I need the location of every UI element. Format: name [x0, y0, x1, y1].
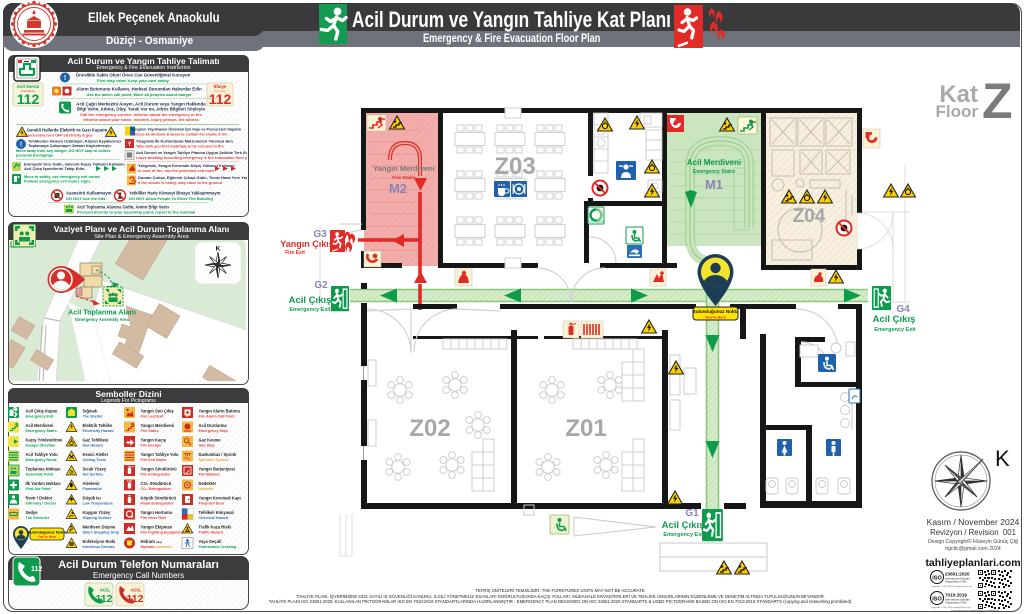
- svg-text:Pedestrians Crossing: Pedestrians Crossing: [199, 545, 237, 549]
- svg-text:Emergency Stairs: Emergency Stairs: [693, 169, 735, 175]
- svg-text:Acil Çıkış: Acil Çıkış: [662, 520, 705, 531]
- svg-text:Sedye: Sedye: [26, 510, 39, 515]
- svg-text:Use the alarm call point, Warn: Use the alarm call point, Warn all peopl…: [86, 92, 192, 97]
- svg-text:Yangın Merdiveni: Yangın Merdiveni: [373, 164, 435, 173]
- svg-text:Yangının Yayılmasını Önlemek İ: Yangının Yayılmasını Önlemek İçin Kapı v…: [131, 127, 242, 132]
- svg-text:The Shelter: The Shelter: [83, 415, 104, 419]
- svg-text:ISO: ISO: [932, 597, 942, 603]
- svg-text:CO2: CO2: [127, 480, 133, 483]
- svg-text:Electricity Hazard: Electricity Hazard: [83, 429, 115, 433]
- svg-text:Acil Çıkış Kapısı: Acil Çıkış Kapısı: [26, 409, 58, 414]
- svg-text:!: !: [64, 75, 66, 82]
- svg-text:Take with you first materials: Take with you first materials to be resc…: [136, 145, 224, 149]
- svg-text:Fire Stairs: Fire Stairs: [141, 429, 159, 433]
- svg-text:Gaz Tehlikesi: Gaz Tehlikesi: [83, 438, 109, 443]
- svg-text:Merdiven Düşme: Merdiven Düşme: [83, 525, 116, 530]
- svg-text:İlk Yardım Noktası: İlk Yardım Noktası: [26, 481, 61, 486]
- svg-text:Z02: Z02: [409, 415, 450, 442]
- svg-text:Acil Merdiveni: Acil Merdiveni: [26, 423, 54, 428]
- svg-text:Yangında İlk Kurtarılacak Malz: Yangında İlk Kurtarılacak Malzemeleri Ya…: [136, 139, 233, 144]
- svg-text:Sığınak: Sığınak: [83, 409, 98, 414]
- svg-text:Bulunduğunuz Nokta: Bulunduğunuz Nokta: [27, 530, 67, 535]
- svg-text:Gas Hazard: Gas Hazard: [83, 444, 104, 448]
- svg-text:112: 112: [127, 593, 144, 605]
- svg-text:Yangın Kaçış: Yangın Kaçış: [141, 438, 167, 443]
- svg-text:Escape Direction: Escape Direction: [26, 444, 57, 448]
- svg-text:Yangın Çıkış: Yangın Çıkış: [280, 239, 334, 249]
- svg-text:Follows emergency exit routes: Follows emergency exit routes signs: [24, 180, 90, 184]
- svg-text:Toplanma Noktası: Toplanma Noktası: [26, 467, 61, 472]
- svg-text:If the smoke is heavy, stay cl: If the smoke is heavy, stay close to the…: [138, 181, 223, 185]
- svg-text:First Aid Point: First Aid Point: [26, 487, 52, 491]
- svg-text:Gerekli Hallerde Elektrik ve G: Gerekli Hallerde Elektrik ve Gazı Kapatı…: [27, 128, 108, 133]
- svg-text:You're Here: You're Here: [38, 535, 56, 539]
- svg-text:Yaya Geçidi: Yaya Geçidi: [199, 539, 222, 544]
- svg-text:G2: G2: [314, 280, 328, 291]
- svg-text:ACİL: ACİL: [100, 587, 111, 593]
- svg-text:Davlumbaz / Sprink: Davlumbaz / Sprink: [199, 452, 237, 457]
- svg-text:Chemical Hazard: Chemical Hazard: [199, 516, 229, 520]
- svg-text:Yetkililer Hariç Kimseyi Binay: Yetkililer Hariç Kimseyi Binaya Yaklaştı…: [129, 191, 221, 196]
- svg-text:Z01: Z01: [565, 415, 606, 442]
- svg-text:Emergency Exit: Emergency Exit: [663, 532, 704, 538]
- svg-text:112: 112: [96, 593, 113, 605]
- svg-text:Foam Extinguisher: Foam Extinguisher: [141, 502, 175, 506]
- svg-text:Fire Exit: Fire Exit: [285, 250, 305, 256]
- svg-text:Organization (TsE): Organization (TsE): [945, 579, 967, 583]
- svg-text:Emergency Exit: Emergency Exit: [874, 327, 915, 333]
- svg-text:7010:2019: 7010:2019: [945, 593, 967, 598]
- svg-text:DO NOT Allow People To Enter T: DO NOT Allow People To Enter The Buildin…: [129, 196, 213, 201]
- svg-text:If necessary turn OFF electric: If necessary turn OFF electricity & gas: [23, 134, 92, 138]
- svg-text:112: 112: [17, 91, 40, 107]
- svg-text:23601:2020: 23601:2020: [945, 572, 970, 577]
- svg-text:Yangın Alarm Butonu: Yangın Alarm Butonu: [199, 409, 241, 414]
- svg-text:The Stretcher: The Stretcher: [26, 516, 50, 520]
- svg-text:!: !: [20, 142, 22, 149]
- svg-text:Z03: Z03: [494, 153, 535, 180]
- svg-text:Yangın Tahliye Yolu: Yangın Tahliye Yolu: [141, 452, 179, 457]
- svg-text:Copyright © ISO 23601 copyrigh: Copyright © ISO 23601 copyright@iso.org: [931, 585, 973, 588]
- svg-text:Organization (TsE): Organization (TsE): [945, 600, 967, 604]
- svg-text:Emergency Assembly Area: Emergency Assembly Area: [75, 317, 129, 322]
- svg-text:Yangında, Yangın Korumalı Kaçı: Yangında, Yangın Korumalı Kaçış Yolların…: [138, 163, 235, 168]
- svg-text:Fire Alarm Call Point: Fire Alarm Call Point: [199, 415, 236, 419]
- svg-text:Proceed directly to your assem: Proceed directly to your assembly point,…: [77, 210, 195, 215]
- svg-text:Alarm Butonunu Kullanın, Herke: Alarm Butonunu Kullanın, Herkesi Durumda…: [76, 87, 202, 92]
- svg-text:Infectious Disease: Infectious Disease: [83, 545, 115, 549]
- svg-text:Acil Merdiveni: Acil Merdiveni: [687, 158, 741, 167]
- svg-text:Fire Blanket: Fire Blanket: [199, 473, 221, 477]
- svg-text:Y: Y: [127, 142, 131, 148]
- svg-text:K: K: [995, 446, 1010, 471]
- svg-text:Gas Stop: Gas Stop: [199, 444, 216, 448]
- svg-text:Asansörü Kullanmayın: Asansörü Kullanmayın: [66, 191, 112, 196]
- svg-text:Düşük Isı: Düşük Isı: [83, 496, 101, 501]
- svg-text:Detector: Detector: [199, 487, 215, 491]
- svg-text:DO NOT Use the lifts: DO NOT Use the lifts: [66, 196, 106, 201]
- svg-text:Revir / Doktor: Revir / Doktor: [26, 496, 53, 501]
- svg-text:112: 112: [209, 91, 232, 107]
- svg-text:Emergency Exit: Emergency Exit: [289, 307, 330, 313]
- svg-text:Acil Çıkış: Acil Çıkış: [289, 295, 332, 306]
- svg-text:Hot Surface: Hot Surface: [83, 473, 104, 477]
- svg-text:First stay calm! Keep your own: First stay calm! Keep your own safety: [97, 78, 170, 83]
- svg-text:Trafik Kaza Riski: Trafik Kaza Riski: [199, 525, 232, 530]
- svg-text:M2: M2: [389, 181, 407, 196]
- svg-text:Fire Escape: Fire Escape: [141, 444, 162, 448]
- svg-text:Emergency Route: Emergency Route: [26, 458, 57, 462]
- svg-text:In case of fire, use fire prot: In case of fire, use fire protected exit…: [138, 169, 215, 173]
- svg-text:Yangın Battaniyesi: Yangın Battaniyesi: [199, 467, 235, 472]
- svg-text:Slipping Surface: Slipping Surface: [83, 516, 112, 520]
- svg-text:Dedektör: Dedektör: [199, 481, 217, 486]
- svg-text:Infirmary / Doctor: Infirmary / Doctor: [26, 502, 57, 506]
- svg-text:K: K: [216, 246, 221, 253]
- svg-text:Fire Fighting Equipment: Fire Fighting Equipment: [141, 531, 184, 535]
- svg-text:Duman Çoksa, Eğilerek Çıkışa G: Duman Çoksa, Eğilerek Çıkışa Gidin, Temi…: [138, 175, 247, 180]
- svg-text:Sprinkler System: Sprinkler System: [199, 458, 230, 462]
- svg-text:Gaz Kesme: Gaz Kesme: [199, 438, 222, 443]
- svg-text:Yangın Ekipman: Yangın Ekipman: [141, 525, 173, 530]
- svg-text:Acil Çıkış: Acil Çıkış: [873, 314, 916, 325]
- svg-text:(copying and networking prohib: (copying and networking prohibited): [951, 609, 999, 613]
- svg-text:Toplamaya Çalışmayın Zaman Kay: Toplamaya Çalışmayın Zaman Kaybetmeyin: [28, 143, 111, 148]
- svg-text:ACİL: ACİL: [131, 587, 142, 593]
- svg-text:M1: M1: [705, 177, 723, 192]
- svg-text:Leave building according emerg: Leave building according emergency & fir…: [136, 156, 247, 160]
- svg-text:Low Temperature: Low Temperature: [83, 502, 113, 506]
- svg-text:Acil Çıkış İşaretlerini Takip: Acil Çıkış İşaretlerini Takip Edin.: [24, 166, 86, 171]
- svg-text:Acil Toplanma Alanı: Acil Toplanma Alanı: [68, 308, 136, 317]
- svg-text:Yangın Merdiveni: Yangın Merdiveni: [141, 423, 175, 428]
- svg-text:112: 112: [31, 566, 42, 573]
- svg-text:Emergency Exit: Emergency Exit: [26, 415, 54, 419]
- svg-text:ISO: ISO: [932, 576, 942, 582]
- svg-text:Yangın Hortumu: Yangın Hortumu: [141, 510, 173, 515]
- svg-text:CO₂ Extinguisher: CO₂ Extinguisher: [141, 487, 172, 491]
- svg-text:Move away from any danger, DO: Move away from any danger, DO NOT stop t…: [16, 149, 111, 153]
- svg-text:Elektrik Tehlike: Elektrik Tehlike: [83, 423, 113, 428]
- svg-text:Kaygan Yüzey: Kaygan Yüzey: [83, 510, 111, 515]
- svg-text:Fire Exit Route: Fire Exit Route: [141, 458, 167, 462]
- svg-text:Informe about your name, incid: Informe about your name, incident, injur…: [83, 117, 199, 122]
- svg-text:Cutting Tools: Cutting Tools: [83, 458, 106, 462]
- svg-text:Move to safety, use emergency: Move to safety, use emergency exit route…: [24, 175, 100, 179]
- svg-text:G1: G1: [685, 508, 699, 519]
- svg-text:Acil Durdurma: Acil Durdurma: [199, 423, 228, 428]
- svg-text:Bilgi Verin, Adınız, Olay, Yar: Bilgi Verin, Adınız, Olay, Yaralı Var mı…: [77, 107, 206, 112]
- svg-text:personal belongings: personal belongings: [16, 154, 53, 158]
- svg-text:Z04: Z04: [793, 206, 826, 227]
- svg-text:Hydrant (outdoor): Hydrant (outdoor): [141, 545, 173, 549]
- svg-text:Yangın Son Çıkış: Yangın Son Çıkış: [141, 409, 175, 414]
- svg-text:Kaçış Yönlendirme: Kaçış Yönlendirme: [26, 438, 64, 443]
- svg-text:Enfeksiyon Riski: Enfeksiyon Riski: [83, 539, 116, 544]
- svg-text:Assembly Point: Assembly Point: [26, 473, 54, 477]
- svg-text:Fire Last Exit: Fire Last Exit: [141, 415, 165, 419]
- svg-text:Öncelikle Sakin Olun! Önce Can: Öncelikle Sakin Olun! Önce Can Güvenliği…: [76, 73, 191, 78]
- svg-text:Flammable: Flammable: [83, 487, 102, 491]
- svg-text:Kesici Aletler: Kesici Aletler: [83, 452, 109, 457]
- svg-text:Sıcak Yüzey: Sıcak Yüzey: [83, 467, 107, 472]
- svg-text:Köpük Söndürücü: Köpük Söndürücü: [141, 496, 177, 501]
- svg-text:Yangın Söndürücü: Yangın Söndürücü: [141, 467, 178, 472]
- svg-text:Yangın Korumalı Kapı: Yangın Korumalı Kapı: [199, 496, 241, 501]
- svg-text:Acil Tahliye Yolu: Acil Tahliye Yolu: [26, 452, 59, 457]
- svg-text:Fire Hose Reel: Fire Hose Reel: [141, 516, 167, 520]
- svg-text:CO₂ Söndürücü: CO₂ Söndürücü: [141, 481, 172, 486]
- svg-text:Emergency Stairs: Emergency Stairs: [26, 429, 57, 433]
- svg-text:Tehlikeli Kimyasal: Tehlikeli Kimyasal: [199, 510, 234, 515]
- svg-text:Alevlenir: Alevlenir: [83, 481, 101, 486]
- svg-text:GAZ KESME: GAZ KESME: [588, 220, 603, 224]
- svg-text:Emergency Stop: Emergency Stop: [199, 429, 229, 433]
- svg-text:Traffic Hazard: Traffic Hazard: [199, 531, 224, 535]
- svg-text:Stairs Stepping Drop: Stairs Stepping Drop: [83, 531, 120, 535]
- svg-text:Acil Durum ve Yangın Tahliye P: Acil Durum ve Yangın Tahliye Planına Uyg…: [136, 150, 247, 155]
- svg-text:Close all windows & doors to c: Close all windows & doors to contain the…: [135, 133, 228, 137]
- svg-text:Bulunduğunuz Nokta: Bulunduğunuz Nokta: [692, 309, 739, 314]
- svg-text:Fireproof Door: Fireproof Door: [199, 502, 225, 506]
- svg-text:Hidrant (dış): Hidrant (dış): [141, 539, 162, 544]
- svg-text:You're Here: You're Here: [705, 316, 726, 320]
- svg-text:Fire Extinguisher: Fire Extinguisher: [141, 473, 172, 477]
